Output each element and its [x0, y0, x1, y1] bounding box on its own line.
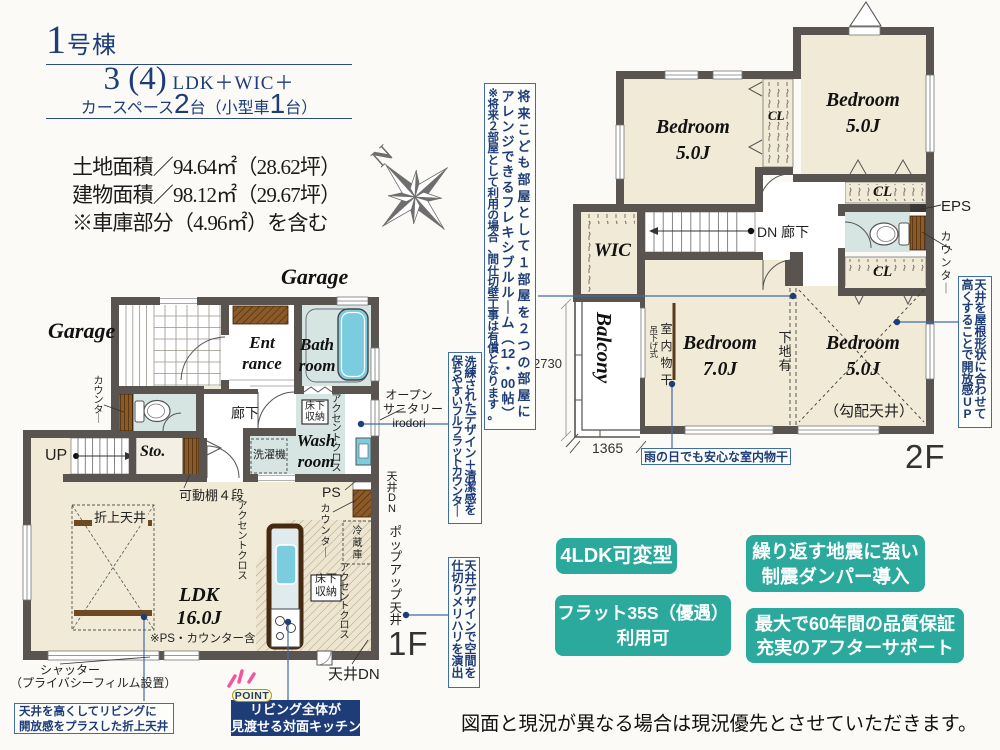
svg-text:N: N [367, 140, 398, 172]
